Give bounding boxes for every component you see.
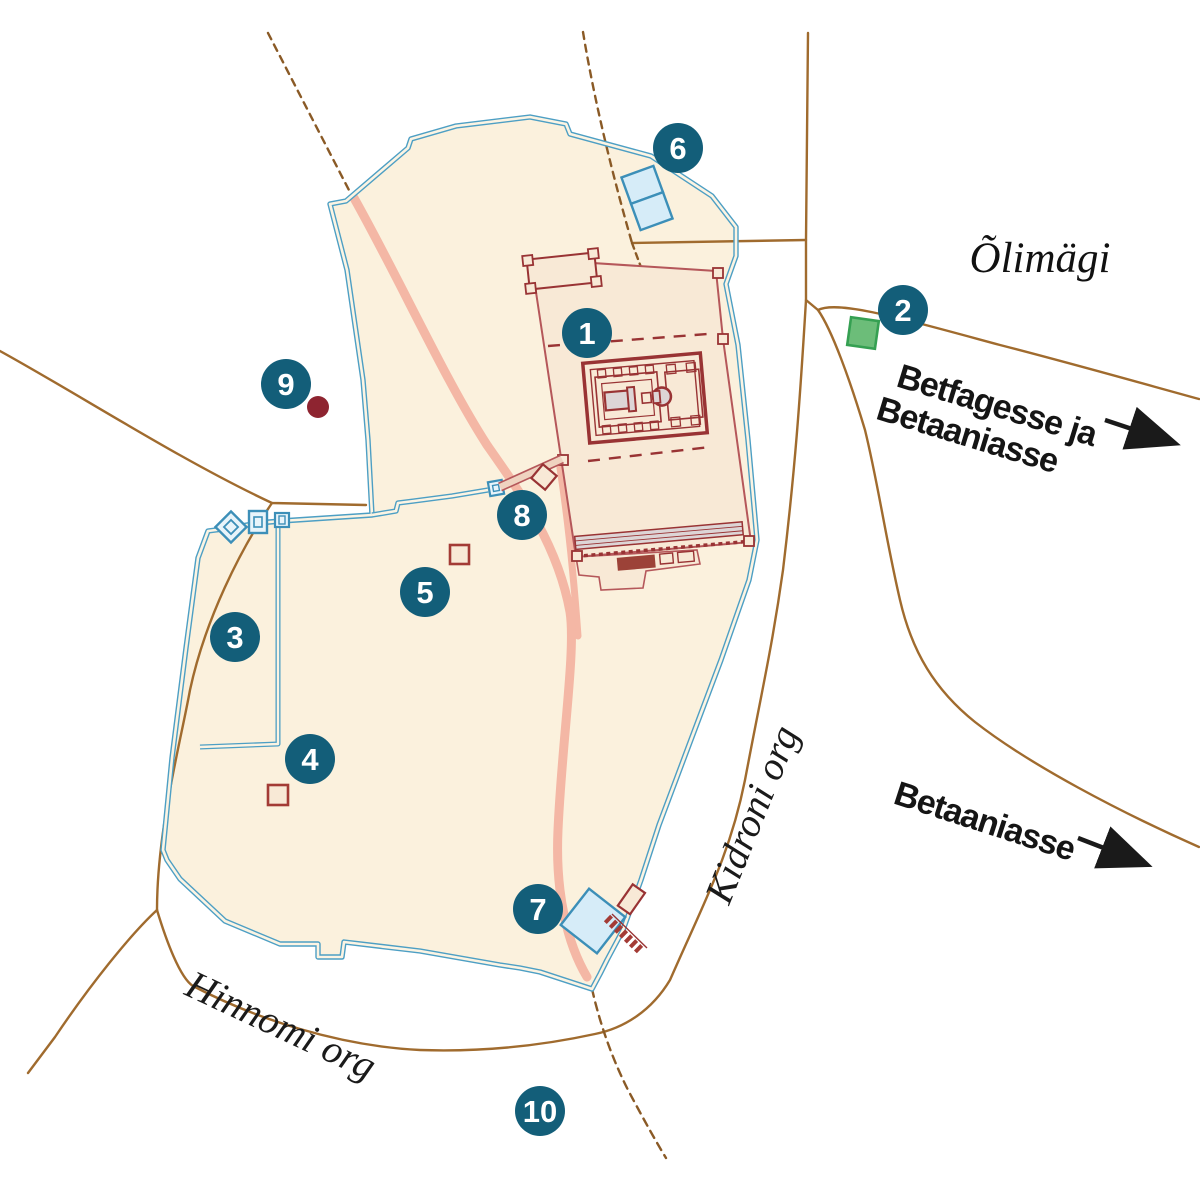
label-bethany-direction: Betaaniasse	[890, 774, 1080, 868]
marker-number-label: 8	[513, 498, 530, 533]
label-hinnom-valley: Hinnomi org	[178, 961, 383, 1088]
marker-number-label: 5	[416, 575, 433, 610]
marker-number-label: 9	[277, 367, 294, 402]
map-canvas: Õlimägi Betfagesse ja Betaaniasse Betaan…	[0, 0, 1200, 1200]
rect-tower	[249, 511, 267, 533]
map-marker-9[interactable]: 9	[261, 359, 311, 409]
map-marker-7[interactable]: 7	[513, 884, 563, 934]
building-site-square-5	[450, 545, 469, 564]
road-west-entry	[0, 351, 366, 505]
road-pool-gate	[592, 989, 666, 1158]
map-marker-4[interactable]: 4	[285, 734, 335, 784]
map-marker-6[interactable]: 6	[653, 123, 703, 173]
label-bethphage-direction: Betfagesse ja Betaaniasse	[872, 354, 1103, 490]
road-northeast	[806, 33, 818, 310]
bethany-arrow	[1078, 838, 1140, 862]
map-marker-2[interactable]: 2	[878, 285, 928, 335]
bethphage-arrow	[1105, 420, 1168, 441]
hill-site-dot	[307, 396, 329, 418]
jerusalem-map: Õlimägi Betfagesse ja Betaaniasse Betaan…	[0, 0, 1200, 1200]
road-northwest	[268, 33, 352, 196]
marker-number-label: 7	[529, 892, 546, 927]
garden-site-square	[847, 317, 879, 349]
map-marker-1[interactable]: 1	[562, 308, 612, 358]
marker-number-label: 1	[578, 316, 595, 351]
map-marker-10[interactable]: 10	[515, 1086, 565, 1136]
building-site-square-4	[268, 785, 288, 805]
map-marker-5[interactable]: 5	[400, 567, 450, 617]
road-southwest-branch	[28, 910, 157, 1073]
map-marker-3[interactable]: 3	[210, 612, 260, 662]
marker-number-label: 10	[523, 1094, 557, 1129]
map-marker-8[interactable]: 8	[497, 490, 547, 540]
label-olive-mount: Õlimägi	[970, 235, 1111, 282]
marker-number-label: 2	[894, 293, 911, 328]
marker-number-label: 6	[669, 131, 686, 166]
svg-text:Betaaniasse: Betaaniasse	[890, 774, 1080, 868]
svg-text:Hinnomi org: Hinnomi org	[178, 961, 383, 1088]
marker-number-label: 3	[226, 620, 243, 655]
square-tower	[275, 513, 289, 527]
marker-number-label: 4	[301, 742, 319, 777]
